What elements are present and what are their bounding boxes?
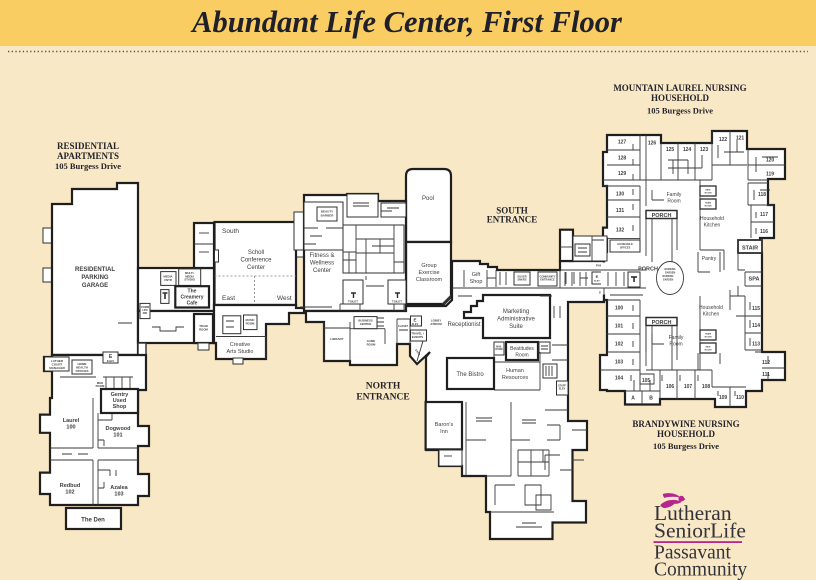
svg-text:Administrative: Administrative — [497, 317, 535, 323]
svg-text:PARKING: PARKING — [81, 275, 109, 281]
svg-text:ROOM: ROOM — [367, 343, 376, 347]
svg-text:GARDEN: GARDEN — [665, 272, 676, 275]
svg-text:Dogwood: Dogwood — [105, 426, 130, 432]
svg-text:112: 112 — [762, 360, 770, 366]
svg-text:101: 101 — [113, 433, 122, 439]
svg-text:A: A — [631, 396, 635, 402]
svg-text:Household: Household — [699, 305, 723, 311]
svg-text:ROOM: ROOM — [705, 206, 712, 208]
svg-text:Pantry: Pantry — [702, 256, 717, 262]
svg-text:TOILET: TOILET — [392, 300, 402, 304]
svg-text:ATRIUM: ATRIUM — [430, 322, 442, 326]
svg-text:Laurel: Laurel — [63, 418, 80, 424]
svg-text:Wellness: Wellness — [310, 261, 334, 267]
svg-text:ROOM: ROOM — [199, 328, 208, 332]
svg-text:SNKRS: SNKRS — [517, 278, 526, 282]
svg-text:103: 103 — [114, 492, 123, 498]
svg-text:100: 100 — [615, 306, 624, 312]
svg-text:Marketing: Marketing — [503, 309, 529, 315]
svg-text:126: 126 — [648, 141, 657, 147]
svg-text:102: 102 — [615, 342, 624, 348]
svg-text:107: 107 — [684, 384, 693, 390]
svg-text:Redbud: Redbud — [60, 483, 80, 489]
svg-text:ENTRANCE: ENTRANCE — [356, 393, 409, 403]
svg-text:124: 124 — [683, 147, 692, 153]
svg-text:The Den: The Den — [81, 518, 105, 524]
svg-text:Arts Studio: Arts Studio — [227, 349, 254, 355]
svg-text:105 Burgess Drive: 105 Burgess Drive — [653, 441, 719, 451]
svg-text:Abundant Life Center, First Fl: Abundant Life Center, First Floor — [190, 5, 623, 39]
svg-text:BRANDYWINE NURSING: BRANDYWINE NURSING — [632, 419, 739, 429]
svg-text:125: 125 — [666, 147, 675, 153]
svg-text:101: 101 — [615, 324, 624, 330]
svg-text:TEAM: TEAM — [705, 333, 711, 336]
svg-text:127: 127 — [618, 140, 627, 146]
svg-text:130: 130 — [616, 192, 625, 198]
svg-text:ROOM: ROOM — [495, 349, 502, 351]
svg-text:APARTMENTS: APARTMENTS — [57, 151, 119, 161]
svg-text:110: 110 — [736, 395, 744, 401]
svg-text:106: 106 — [666, 384, 675, 390]
svg-text:GARAGE: GARAGE — [82, 283, 108, 289]
svg-text:Center: Center — [247, 265, 265, 271]
svg-text:119: 119 — [766, 172, 774, 178]
svg-text:GARDEN: GARDEN — [663, 279, 674, 282]
svg-text:Fitness &: Fitness & — [309, 253, 334, 259]
svg-text:ELEV: ELEV — [412, 323, 419, 326]
svg-text:Shop: Shop — [470, 279, 483, 285]
svg-text:STAIR: STAIR — [742, 246, 758, 252]
svg-text:Cafe: Cafe — [187, 301, 198, 307]
svg-text:OFFICES: OFFICES — [620, 247, 631, 250]
svg-text:Gift: Gift — [472, 272, 481, 278]
svg-text:Family: Family — [667, 192, 682, 198]
svg-text:ELEV: ELEV — [559, 388, 566, 391]
svg-text:Center: Center — [313, 268, 331, 274]
svg-text:MED: MED — [706, 190, 711, 192]
svg-text:Household: Household — [700, 216, 724, 222]
svg-text:Room: Room — [515, 353, 528, 359]
svg-text:Receptionist: Receptionist — [447, 322, 480, 328]
svg-text:TOILET: TOILET — [348, 300, 358, 304]
svg-text:Community: Community — [654, 560, 747, 580]
svg-text:PORCH: PORCH — [638, 267, 658, 273]
svg-text:Human: Human — [506, 368, 524, 374]
svg-text:HOUSEHOLD: HOUSEHOLD — [657, 429, 716, 439]
svg-text:Group: Group — [421, 263, 436, 269]
svg-text:RESIDENTIAL: RESIDENTIAL — [75, 267, 115, 273]
svg-text:Shop: Shop — [113, 404, 127, 410]
svg-text:Azalea: Azalea — [110, 485, 128, 491]
svg-text:Kitchen: Kitchen — [704, 223, 721, 229]
svg-text:108: 108 — [702, 384, 711, 390]
svg-text:ROOM: ROOM — [705, 350, 712, 352]
svg-text:103: 103 — [615, 360, 624, 366]
svg-text:ENTRANCE: ENTRANCE — [540, 278, 555, 282]
svg-text:HOUSEHOLD: HOUSEHOLD — [651, 93, 710, 103]
svg-text:CENTER: CENTER — [360, 322, 372, 326]
svg-text:ELEV: ELEV — [594, 281, 600, 283]
svg-text:PORCH: PORCH — [652, 320, 672, 326]
svg-text:111: 111 — [762, 372, 770, 378]
svg-text:131: 131 — [616, 208, 625, 214]
svg-text:TEAM: TEAM — [705, 202, 711, 205]
svg-text:SPA: SPA — [749, 277, 760, 283]
svg-text:113: 113 — [752, 342, 760, 348]
svg-text:122: 122 — [719, 137, 728, 143]
svg-text:MOUNTAIN LAUREL NURSING: MOUNTAIN LAUREL NURSING — [613, 83, 746, 93]
svg-text:114: 114 — [752, 323, 760, 329]
svg-text:STUDIO: STUDIO — [184, 278, 195, 282]
svg-text:EVENTS: EVENTS — [412, 335, 423, 339]
svg-text:East: East — [222, 295, 235, 302]
svg-text:Room: Room — [669, 342, 682, 348]
svg-text:123: 123 — [700, 147, 709, 153]
svg-text:NORTH: NORTH — [366, 382, 401, 392]
svg-text:E: E — [413, 318, 416, 323]
svg-text:CLOSET: CLOSET — [398, 325, 409, 328]
svg-text:132: 132 — [616, 228, 625, 234]
svg-text:ENTRANCE: ENTRANCE — [487, 215, 538, 225]
svg-text:Suite: Suite — [509, 324, 523, 330]
svg-text:117: 117 — [760, 212, 768, 218]
svg-text:MANAGER: MANAGER — [49, 366, 65, 370]
svg-text:The Bistro: The Bistro — [456, 372, 484, 378]
svg-text:109: 109 — [719, 395, 728, 401]
svg-text:B: B — [649, 396, 653, 402]
svg-text:Beatitudes: Beatitudes — [510, 346, 534, 352]
svg-text:Room: Room — [667, 199, 680, 205]
svg-text:120: 120 — [766, 158, 775, 164]
svg-text:118: 118 — [758, 192, 766, 198]
svg-text:Creative: Creative — [230, 342, 250, 348]
svg-text:Resources: Resources — [502, 375, 529, 381]
svg-text:E: E — [596, 274, 599, 279]
svg-text:129: 129 — [618, 171, 627, 177]
svg-text:BARBER: BARBER — [321, 214, 335, 218]
svg-text:ELEV: ELEV — [107, 359, 114, 363]
svg-text:South: South — [222, 228, 239, 235]
svg-text:Exercise: Exercise — [418, 270, 439, 276]
svg-text:Pool: Pool — [422, 196, 434, 202]
svg-text:ROOM: ROOM — [246, 322, 255, 326]
svg-text:PORCH: PORCH — [652, 213, 672, 219]
svg-text:128: 128 — [618, 156, 627, 162]
svg-text:Kitchen: Kitchen — [703, 312, 720, 318]
svg-text:Family: Family — [669, 335, 684, 341]
svg-text:ROOM: ROOM — [705, 193, 712, 195]
svg-text:115: 115 — [752, 306, 760, 312]
svg-text:Scholl: Scholl — [248, 250, 264, 256]
svg-text:ROOM: ROOM — [96, 384, 105, 388]
svg-text:102: 102 — [65, 490, 74, 496]
svg-text:116: 116 — [760, 229, 768, 235]
svg-text:Conference: Conference — [240, 258, 272, 264]
svg-text:105 Burgess Drive: 105 Burgess Drive — [55, 161, 121, 171]
svg-text:121: 121 — [736, 136, 745, 142]
svg-text:105: 105 — [642, 378, 651, 384]
svg-text:CNTR: CNTR — [164, 278, 172, 282]
svg-text:MED: MED — [706, 347, 711, 349]
svg-text:Baron's: Baron's — [435, 422, 454, 428]
svg-text:SeniorLife: SeniorLife — [654, 519, 746, 543]
svg-text:OFFICES: OFFICES — [75, 369, 88, 373]
svg-text:LIBRARY: LIBRARY — [330, 337, 343, 341]
svg-text:Inn: Inn — [440, 429, 448, 435]
svg-text:100: 100 — [66, 425, 75, 431]
svg-text:ROOM: ROOM — [705, 337, 712, 339]
svg-text:105 Burgess Drive: 105 Burgess Drive — [647, 106, 713, 116]
svg-text:West: West — [277, 295, 292, 302]
svg-text:Classroom: Classroom — [416, 277, 443, 283]
svg-text:RESIDENTIAL: RESIDENTIAL — [57, 141, 119, 151]
svg-text:104: 104 — [615, 376, 624, 382]
svg-text:DIR: DIR — [143, 311, 148, 315]
